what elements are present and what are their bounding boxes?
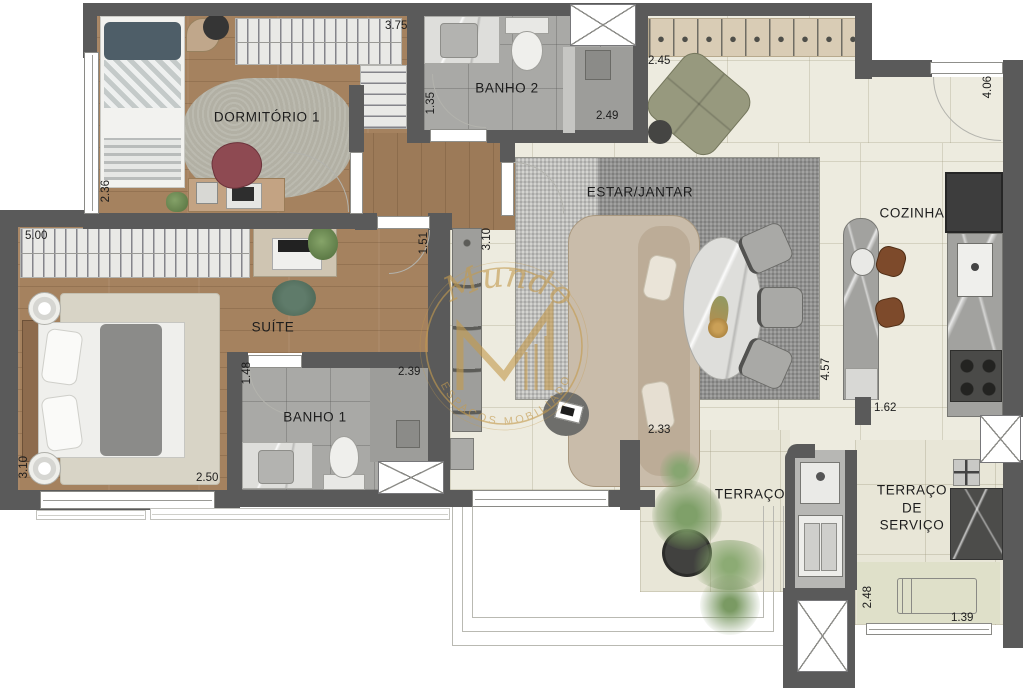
wall-left — [0, 210, 18, 510]
wall-right-lower — [1003, 460, 1023, 648]
label-banho2: BANHO 2 — [475, 81, 538, 96]
bedroom1-door — [350, 152, 363, 214]
label-terraco-servico: TERRAÇO DE SERVIÇO — [871, 482, 953, 535]
suite-door — [377, 216, 430, 229]
suite-pillow-2 — [40, 394, 83, 452]
suite-window — [40, 491, 215, 509]
bath2-window — [570, 4, 636, 46]
wall-dorm-bath2-divider — [407, 3, 424, 133]
peninsula-sink — [850, 248, 875, 276]
terrace-plant-foliage-3 — [700, 575, 760, 635]
sill-bottom-left — [150, 508, 450, 520]
entry-door — [930, 62, 1003, 74]
suite-pouf — [272, 280, 316, 316]
hall-living-door — [501, 162, 514, 216]
wall-right-upper — [1003, 60, 1023, 417]
label-suite: SUÍTE — [252, 320, 295, 335]
dim-peninsula-height: 4.57 — [820, 358, 832, 380]
bath1-shower-fixture — [396, 420, 420, 448]
bath1-toilet-bowl — [329, 436, 359, 478]
kitchen-faucet — [971, 263, 979, 271]
dim-kitchen-pass: 1.62 — [874, 402, 896, 414]
peninsula-end-cabinet — [845, 368, 878, 400]
cooktop — [950, 350, 1002, 402]
bedroom1-laptop-screen — [232, 187, 254, 201]
dining-chair-2 — [757, 287, 803, 328]
dim-dorm-top: 3.75 — [385, 20, 407, 32]
dining-centerpiece-base — [708, 318, 728, 338]
fridge — [945, 172, 1003, 233]
bath1-door — [248, 355, 302, 368]
suite-lamp-top — [28, 292, 61, 325]
bedroom1-lamp — [203, 14, 229, 40]
suite-pillow-1 — [40, 328, 83, 386]
dim-suite-bottom: 2.50 — [196, 472, 218, 484]
laundry-tank-faucet — [816, 472, 825, 481]
dim-banho1-width: 2.39 — [398, 366, 420, 378]
bath2-door — [430, 129, 487, 142]
wall-laundry-top — [787, 444, 815, 458]
wall-top — [83, 3, 872, 16]
dim-servico-left: 2.48 — [862, 586, 874, 608]
wall-laundry-right — [845, 450, 857, 590]
wall-entry-step-h — [868, 60, 932, 77]
dim-entry-width: 2.45 — [648, 55, 670, 67]
bath2-sink — [440, 23, 478, 58]
bedroom1-wardrobe — [235, 18, 402, 65]
wall-dorm-hall-divider — [349, 85, 364, 152]
label-cozinha: COZINHA — [880, 206, 945, 221]
dim-banho1-left: 1.48 — [241, 362, 253, 384]
wall-dorm-left-top — [83, 3, 97, 58]
dim-hall-height: 1.51 — [418, 232, 430, 254]
wall-dorm-bottom — [83, 213, 355, 229]
bar-shelf — [450, 438, 474, 470]
wall-service-stub — [855, 397, 871, 425]
terrace-plant-foliage-4 — [660, 448, 700, 494]
wall-terrace-left — [620, 440, 640, 510]
dim-servico-bottom: 1.39 — [951, 612, 973, 624]
washing-machine-door-1 — [804, 523, 820, 571]
entry-side-table — [648, 120, 672, 144]
label-banho1: BANHO 1 — [283, 410, 346, 425]
service-counter — [950, 488, 1003, 560]
wall-living-bottom-a — [440, 490, 473, 507]
label-terraco: TERRAÇO — [715, 487, 785, 502]
suite-desk-plant — [308, 226, 338, 260]
suite-throw — [100, 324, 162, 456]
dim-kitchen-height: 4.06 — [982, 76, 994, 98]
wall-bath2-bottom-a — [407, 130, 430, 143]
dim-sofa-bottom: 2.33 — [648, 424, 670, 436]
bedroom1-wardrobe-return — [360, 65, 407, 129]
drying-rack — [897, 578, 977, 614]
dim-dorm-left: 2.36 — [100, 180, 112, 202]
bedroom1-pillow — [104, 22, 181, 60]
shaft-window — [797, 600, 848, 672]
label-dormitorio1: DORMITÓRIO 1 — [214, 110, 320, 125]
wall-shower2-divider — [563, 47, 575, 133]
sill-suite — [36, 510, 146, 520]
service-guardrail — [866, 623, 992, 635]
dim-estar-left: 3.10 — [481, 228, 493, 250]
suite-wardrobe — [20, 228, 250, 278]
dim-suite-left: 3.10 — [18, 456, 30, 478]
bedroom1-plant — [166, 192, 188, 212]
bedroom1-clock — [196, 182, 218, 204]
bedroom1-bed-foot — [104, 138, 181, 180]
floor-plan: Mundo ESPAÇOS MOBILIADOS DORMITÓRIO 1 BA… — [0, 0, 1024, 690]
bedroom1-blanket — [104, 60, 181, 108]
suite-lamp-bottom — [28, 452, 61, 485]
coat-rack — [648, 18, 865, 57]
wall-hall-bottom-a — [355, 213, 377, 230]
wall-bath1-top-b — [302, 352, 443, 368]
bedroom1-window — [84, 52, 99, 214]
dim-banho2-width: 2.49 — [596, 110, 618, 122]
living-sliding-door — [472, 490, 609, 507]
dim-hall-top: 1.35 — [425, 92, 437, 114]
kitchen-window — [980, 415, 1021, 463]
wall-hall-right-stub — [500, 130, 515, 162]
washing-machine-door-2 — [821, 523, 837, 571]
laundry-tank — [800, 462, 840, 504]
wall-bath1-left — [227, 352, 242, 507]
bath1-window — [378, 461, 444, 494]
bath2-toilet-bowl — [511, 31, 543, 71]
label-estar-jantar: ESTAR/JANTAR — [587, 185, 693, 200]
tv-console — [452, 228, 482, 432]
wall-laundry-left — [785, 450, 795, 590]
bath1-sink — [258, 450, 294, 484]
bath2-shower-fixture — [585, 50, 611, 80]
dim-suite-wardrobe: 5.00 — [25, 230, 47, 242]
service-tap — [953, 459, 980, 486]
